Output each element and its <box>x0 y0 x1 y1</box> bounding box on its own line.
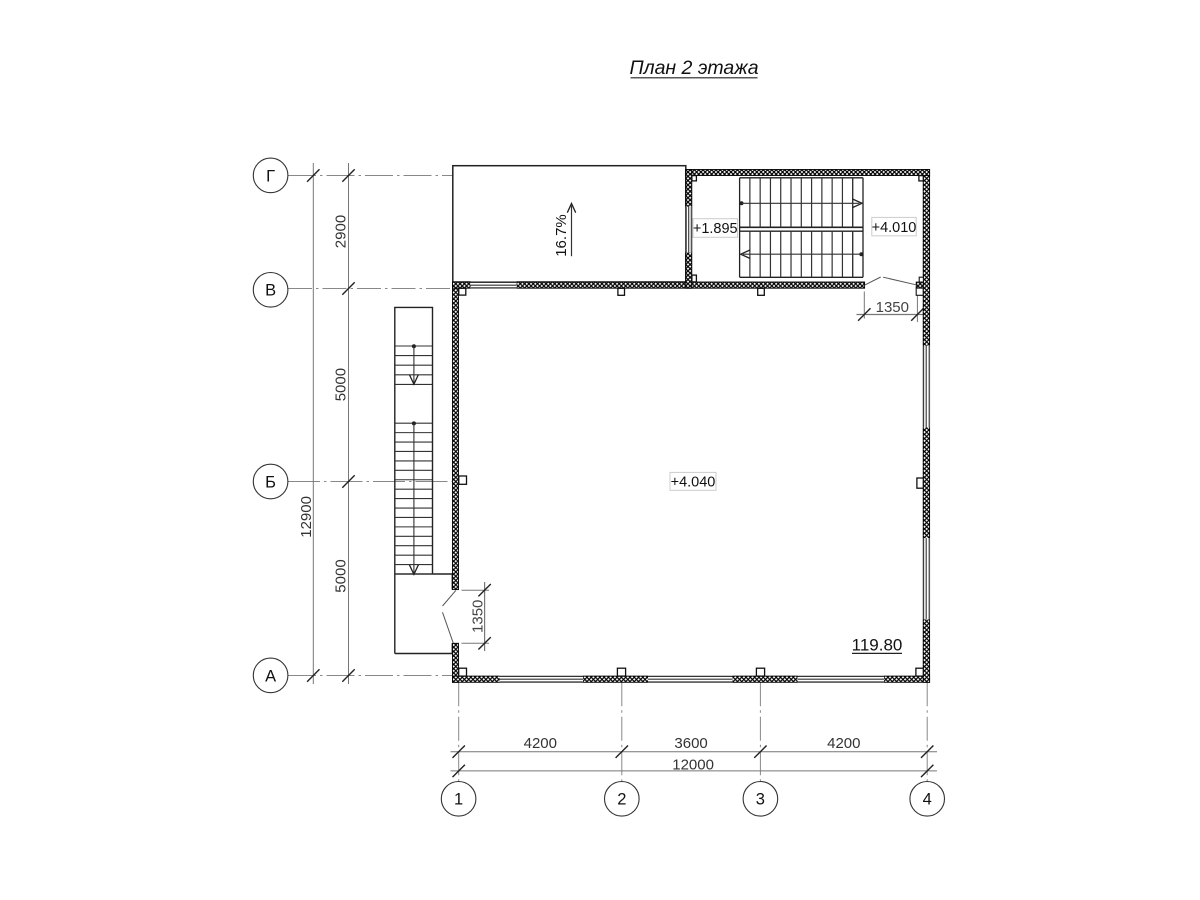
svg-text:1: 1 <box>454 791 463 809</box>
svg-text:119.80: 119.80 <box>852 636 903 655</box>
svg-text:План 2 этажа: План 2 этажа <box>629 57 758 79</box>
svg-text:А: А <box>265 667 276 685</box>
svg-text:1350: 1350 <box>876 299 909 316</box>
svg-text:12900: 12900 <box>298 496 315 538</box>
svg-text:+4.010: +4.010 <box>872 220 917 236</box>
svg-text:4: 4 <box>923 791 932 809</box>
svg-text:12000: 12000 <box>672 756 714 773</box>
svg-text:4200: 4200 <box>827 735 860 752</box>
svg-text:3600: 3600 <box>674 735 707 752</box>
svg-text:5000: 5000 <box>332 368 349 401</box>
svg-text:1350: 1350 <box>469 600 486 633</box>
svg-text:4200: 4200 <box>524 735 557 752</box>
svg-text:+1.895: +1.895 <box>693 221 738 237</box>
svg-text:В: В <box>265 282 276 300</box>
svg-text:3: 3 <box>756 791 765 809</box>
svg-text:Б: Б <box>265 473 276 491</box>
svg-text:2: 2 <box>617 791 626 809</box>
svg-text:2900: 2900 <box>332 215 349 248</box>
svg-text:Г: Г <box>266 167 275 185</box>
svg-text:+4.040: +4.040 <box>671 475 716 491</box>
svg-text:5000: 5000 <box>332 559 349 592</box>
svg-text:16.7%: 16.7% <box>553 214 570 257</box>
